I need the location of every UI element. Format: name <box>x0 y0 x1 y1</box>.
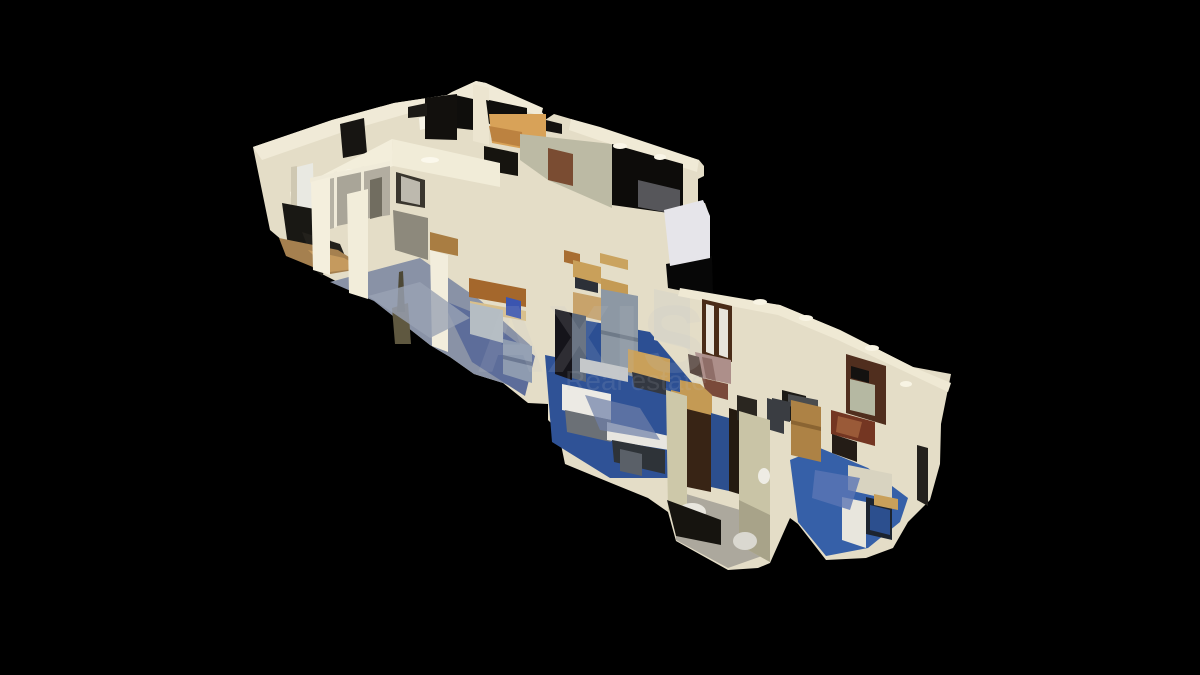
svg-text:Real estate: Real estate <box>565 365 707 396</box>
